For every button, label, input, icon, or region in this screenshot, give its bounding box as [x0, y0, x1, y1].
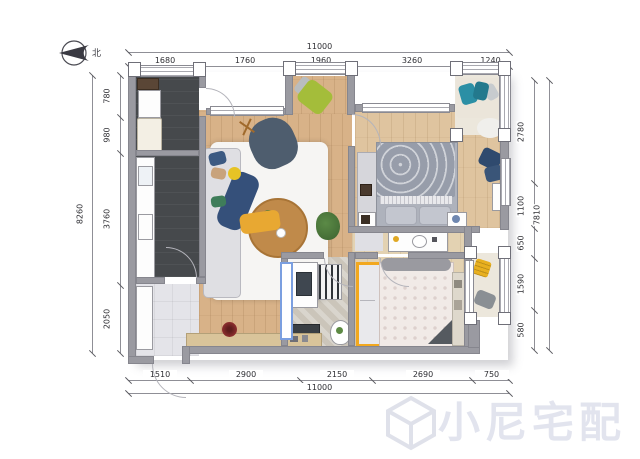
dim-label: 780 [103, 87, 112, 104]
master-pillow-left [385, 206, 417, 225]
dim-total-label: 7810 [533, 204, 542, 226]
dim-label: 1760 [228, 56, 262, 65]
vanity-decor [432, 237, 437, 242]
watermark: 小尼宅配 [384, 394, 626, 452]
window-balcony [138, 65, 197, 77]
wall-kitchen-living [199, 116, 206, 277]
kitchen-sink [138, 214, 153, 240]
wall-entry-bottom [128, 356, 154, 364]
bedroom2-wardrobe-divider [360, 300, 375, 301]
balcony-daybed [137, 118, 162, 152]
entry-shoe-cabinet [136, 286, 153, 350]
dim-label: 3760 [103, 208, 112, 230]
dim-total-line [549, 80, 550, 350]
dim-label: 650 [517, 234, 526, 251]
corner-post [464, 246, 477, 259]
dim-label: 1100 [517, 194, 526, 216]
dim-label: 750 [475, 370, 509, 379]
vanity-sink [412, 235, 427, 248]
dim-total-label: 8260 [76, 203, 85, 225]
shelf-item-2 [454, 300, 462, 310]
dim-total-label: 11000 [301, 42, 339, 51]
dresser-decor [360, 184, 372, 196]
toilet-plant [336, 327, 343, 334]
wall-kitchen-south [136, 277, 165, 284]
corner-post [345, 61, 358, 76]
watermark-text: 小尼宅配 [438, 394, 626, 452]
window-bedroom-north [362, 103, 450, 113]
window-bay1240-right [499, 73, 511, 135]
shelf-item [454, 280, 462, 288]
corner-post [498, 246, 511, 259]
hall-mat [355, 233, 383, 251]
dim-label: 2780 [517, 120, 526, 142]
master-bed-duvet [377, 143, 455, 197]
window-bedroom-east [500, 158, 511, 206]
corner-post [450, 128, 463, 142]
wall-bottom-main [182, 346, 480, 354]
dim-label: 2900 [229, 370, 263, 379]
bathroom-sliding-door [280, 262, 293, 340]
corner-post [498, 61, 511, 76]
wall-bedroom2-top-left [355, 252, 378, 259]
wall-bedroom2-top-right [408, 252, 468, 259]
vanity-soap [393, 236, 399, 242]
dim-label: 980 [103, 126, 112, 143]
window-bedroom2-bay [464, 260, 474, 316]
corner-post [498, 128, 511, 142]
corner-post [464, 312, 477, 325]
wall-kitchen-south-2 [196, 277, 206, 284]
north-label: 北 [92, 46, 101, 59]
washing-machine [138, 90, 161, 118]
dim-total-line [92, 75, 93, 353]
bathroom-sink [296, 272, 312, 296]
nightstand-right-decor [452, 215, 460, 223]
window-bay1960 [290, 62, 350, 75]
corner-post [450, 61, 463, 76]
window-bay-right [499, 256, 511, 316]
corner-post [283, 61, 296, 76]
dim-label: 1590 [517, 273, 526, 295]
north-compass: 北 [56, 36, 102, 72]
corner-post [498, 312, 511, 325]
balcony-cabinet [137, 78, 159, 90]
wall-bathroom-top [281, 252, 324, 259]
coffee-table-cup [276, 228, 286, 238]
wall-bedroom-left [348, 146, 355, 228]
dim-total-line [128, 52, 509, 53]
wall-balcony-kitchen-divider [136, 150, 199, 156]
dim-total-label: 11000 [301, 383, 339, 392]
kitchen-stove [138, 166, 153, 186]
sofa-pillow-tan [210, 167, 227, 180]
corner-post [193, 62, 206, 77]
wall-entry-step [182, 346, 190, 364]
floorplan-canvas: 北 [0, 0, 640, 459]
floor-plant [316, 212, 340, 240]
sofa-pillow-yellow [228, 167, 241, 180]
dim-label: 1680 [148, 56, 182, 65]
dim-label: 2050 [103, 308, 112, 330]
wall-bedroom-south [348, 226, 480, 233]
dim-label: 2690 [406, 370, 440, 379]
north-arrow-icon [56, 36, 92, 70]
corner-post [128, 62, 141, 77]
dim-label: 3260 [395, 56, 429, 65]
nightstand-left-speaker [361, 215, 370, 224]
dim-label: 580 [517, 321, 526, 338]
dim-label: 2150 [320, 370, 354, 379]
cube-logo-icon [384, 394, 438, 452]
wall-left [128, 68, 136, 364]
master-bed-lace [380, 196, 452, 204]
flower-pot-red [222, 322, 237, 337]
console-decor-2 [302, 335, 308, 342]
